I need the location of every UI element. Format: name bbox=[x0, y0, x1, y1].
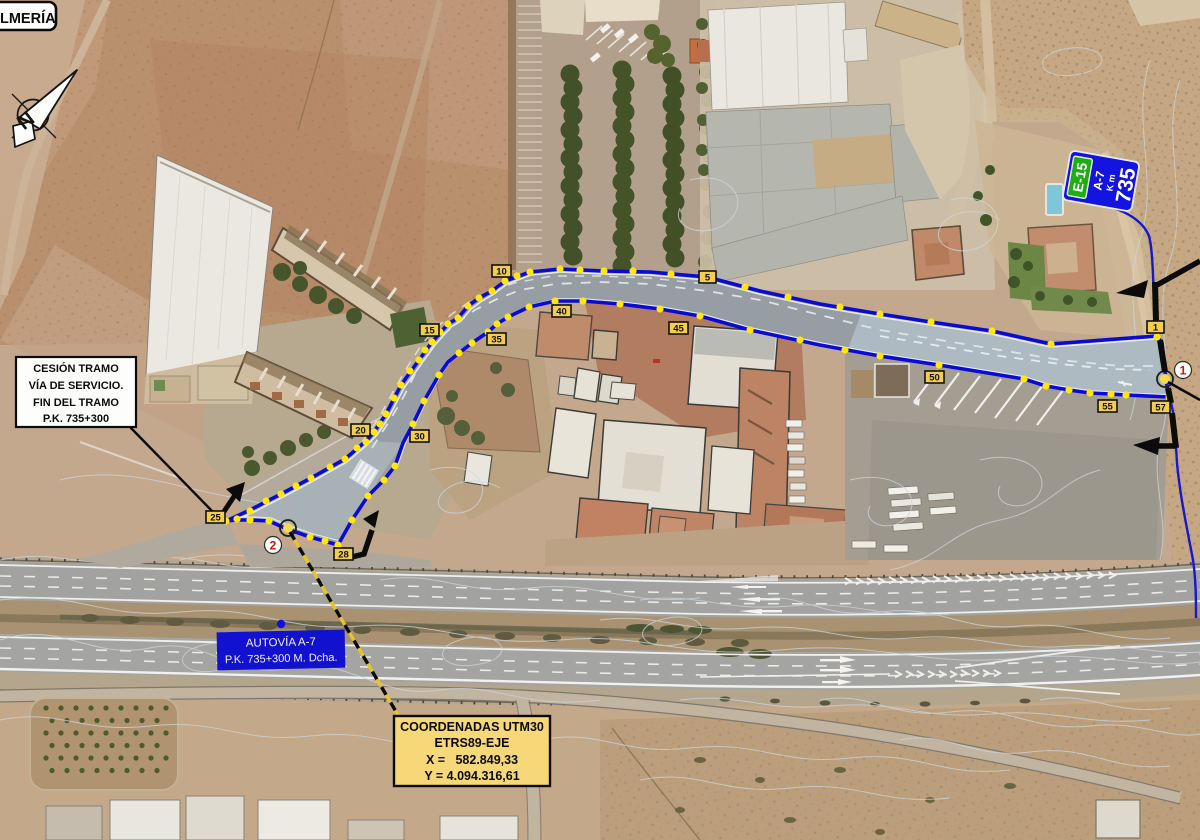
svg-text:Y = 4.094.316,61: Y = 4.094.316,61 bbox=[424, 769, 519, 783]
svg-text:2: 2 bbox=[270, 539, 277, 553]
svg-text:5: 5 bbox=[705, 273, 711, 284]
svg-text:30: 30 bbox=[414, 432, 425, 443]
svg-text:LMERÍA: LMERÍA bbox=[0, 10, 56, 27]
svg-text:25: 25 bbox=[210, 513, 221, 524]
svg-text:1: 1 bbox=[1180, 364, 1187, 378]
svg-text:P.K. 735+300: P.K. 735+300 bbox=[43, 413, 109, 425]
svg-text:35: 35 bbox=[491, 335, 502, 346]
svg-text:50: 50 bbox=[929, 373, 940, 384]
svg-text:1: 1 bbox=[1153, 323, 1159, 334]
svg-text:45: 45 bbox=[673, 324, 684, 335]
svg-text:X = 582.849,33: X = 582.849,33 bbox=[426, 753, 518, 767]
svg-text:40: 40 bbox=[556, 307, 567, 318]
svg-text:COORDENADAS UTM30: COORDENADAS UTM30 bbox=[400, 720, 544, 734]
svg-text:VÍA DE SERVICIO.: VÍA DE SERVICIO. bbox=[29, 379, 124, 392]
svg-text:55: 55 bbox=[1102, 402, 1113, 413]
svg-text:CESIÓN TRAMO: CESIÓN TRAMO bbox=[33, 362, 119, 375]
svg-text:10: 10 bbox=[496, 267, 507, 278]
svg-text:AUTOVÍA A-7: AUTOVÍA A-7 bbox=[246, 635, 316, 649]
svg-text:57: 57 bbox=[1155, 403, 1166, 414]
svg-text:20: 20 bbox=[355, 426, 366, 437]
svg-text:28: 28 bbox=[338, 550, 349, 561]
svg-text:15: 15 bbox=[424, 326, 435, 337]
svg-text:FIN DEL TRAMO: FIN DEL TRAMO bbox=[33, 397, 119, 409]
svg-text:ETRS89-EJE: ETRS89-EJE bbox=[434, 736, 509, 750]
svg-text:P.K. 735+300 M. Dcha.: P.K. 735+300 M. Dcha. bbox=[225, 652, 338, 666]
